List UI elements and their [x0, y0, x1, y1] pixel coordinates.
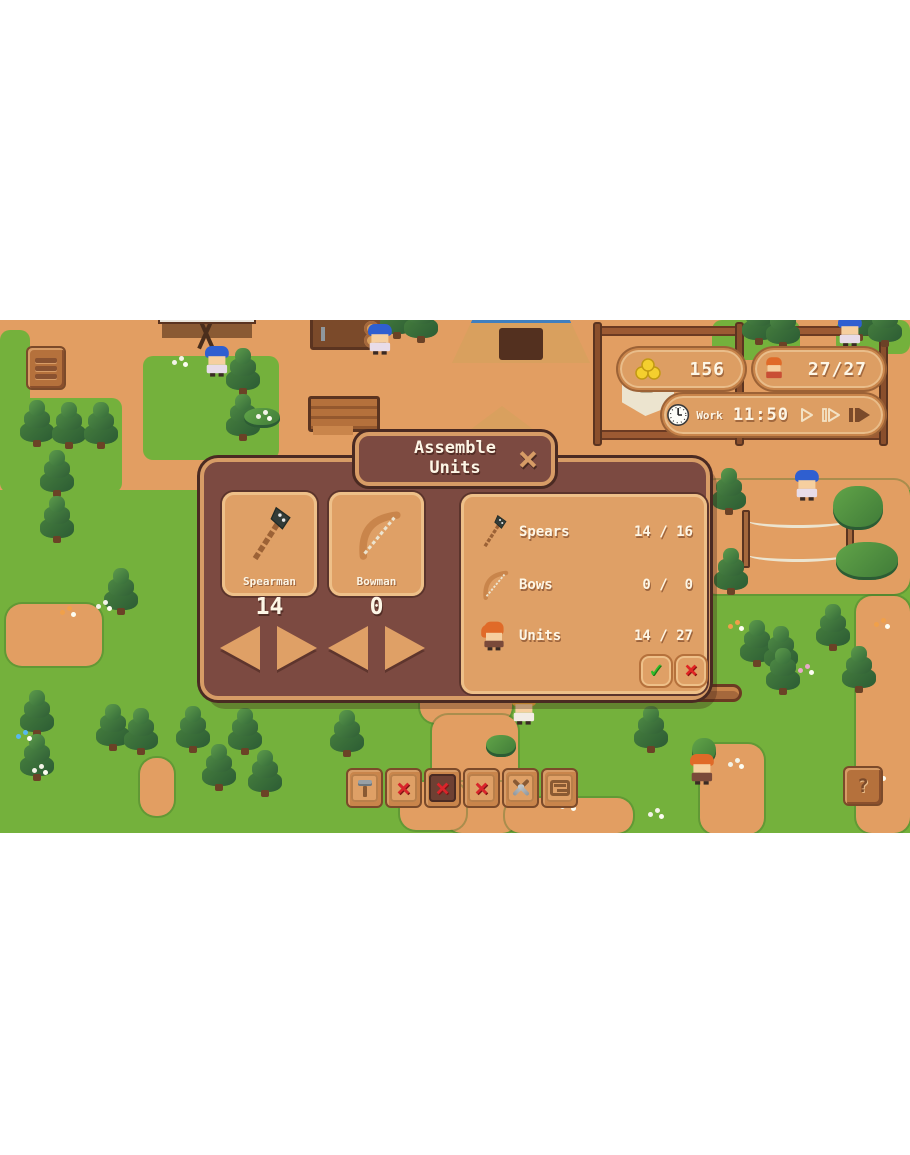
- villager-character: [205, 346, 229, 377]
- villager-character: [690, 754, 714, 785]
- phase-label: Work: [696, 409, 723, 422]
- crossed-swords-icon: [510, 777, 532, 799]
- summary-panel: Spears 14 / 16 Bows 0 / 0: [461, 494, 707, 694]
- gold-coins-icon: [634, 358, 664, 380]
- speed-fast-button[interactable]: [820, 406, 842, 424]
- spears-summary-row: Spears 14 / 16: [475, 510, 693, 554]
- gold-resource-pill: 156: [618, 348, 745, 390]
- confirm-button[interactable]: ✓: [639, 654, 673, 688]
- units-label: Units: [519, 628, 595, 644]
- dialog-title: Assemble Units: [390, 439, 520, 478]
- bows-value: 0 / 0: [642, 577, 693, 593]
- red-x-icon: ×: [474, 777, 488, 799]
- speed-fastest-button[interactable]: [847, 406, 871, 424]
- villager-icon: [483, 622, 505, 651]
- build-button[interactable]: [346, 768, 383, 808]
- cancel-option-2-button[interactable]: ×: [424, 768, 461, 808]
- clock-time: 11:50: [733, 405, 789, 425]
- cancel-option-1-button[interactable]: ×: [385, 768, 422, 808]
- bowman-decrease-button[interactable]: [328, 626, 368, 670]
- units-value: 14 / 27: [634, 628, 693, 644]
- game-viewport: 156 27/27 Work 11:50: [0, 320, 910, 833]
- spearman-label: Spearman: [243, 575, 296, 588]
- help-button[interactable]: ?: [843, 766, 883, 806]
- population-count: 27/27: [808, 359, 867, 380]
- military-button[interactable]: [502, 768, 539, 808]
- villager-character: [838, 320, 862, 347]
- spear-icon: [245, 504, 295, 566]
- red-x-icon: ×: [396, 777, 410, 799]
- spears-label: Spears: [519, 524, 595, 540]
- bowman-card[interactable]: Bowman: [329, 492, 424, 596]
- structures-button[interactable]: [541, 768, 578, 808]
- speed-play-button[interactable]: [797, 406, 815, 424]
- close-icon[interactable]: ×: [507, 436, 549, 482]
- dialog-title-bar: Assemble Units ×: [355, 432, 555, 486]
- bowman-count: 0: [329, 594, 424, 620]
- bowman-label: Bowman: [357, 575, 397, 588]
- assemble-units-dialog: Spearman Bowman 14 0: [200, 458, 710, 700]
- spearman-decrease-button[interactable]: [220, 626, 260, 670]
- bows-summary-row: Bows 0 / 0: [475, 563, 693, 607]
- bows-label: Bows: [519, 577, 595, 593]
- screenshot-stage: 156 27/27 Work 11:50: [0, 0, 910, 1155]
- spearman-increase-button[interactable]: [277, 626, 317, 670]
- menu-bars-icon: [35, 358, 57, 363]
- spear-icon: [479, 511, 509, 553]
- spearman-count: 14: [222, 594, 317, 620]
- units-summary-row: Units 14 / 27: [475, 614, 693, 658]
- villager-icon: [765, 357, 783, 380]
- cancel-button[interactable]: ×: [674, 654, 708, 688]
- hammer-icon: [355, 778, 375, 798]
- question-mark-icon: ?: [857, 775, 868, 797]
- bottom-toolbar: × × ×: [346, 768, 578, 808]
- menu-button[interactable]: [26, 346, 66, 390]
- gold-count: 156: [689, 359, 725, 380]
- wood-frame-icon: [550, 780, 570, 796]
- clock-icon: [666, 396, 690, 434]
- spears-value: 14 / 16: [634, 524, 693, 540]
- villager-character: [795, 470, 819, 501]
- bow-icon: [352, 504, 402, 566]
- time-pill: Work 11:50: [662, 394, 885, 436]
- cancel-option-3-button[interactable]: ×: [463, 768, 500, 808]
- villager-character: [368, 324, 392, 355]
- spearman-card[interactable]: Spearman: [222, 492, 317, 596]
- bowman-increase-button[interactable]: [385, 626, 425, 670]
- population-pill: 27/27: [753, 348, 885, 390]
- bow-icon: [479, 565, 509, 605]
- red-x-icon: ×: [435, 777, 449, 799]
